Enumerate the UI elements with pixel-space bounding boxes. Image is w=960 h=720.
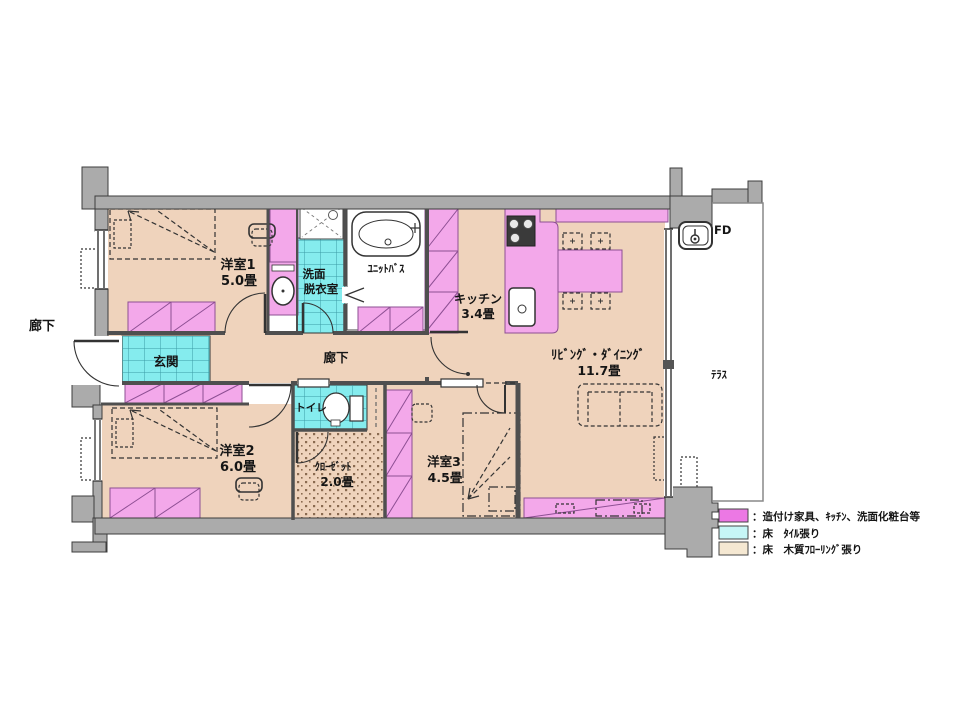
legend-swatch-wood [719,542,748,555]
label-room1-name: 洋室1 [220,257,255,273]
label-closet-name: ｸﾛｰｾﾞｯﾄ [315,460,352,473]
legend-swatch-builtin [719,509,748,522]
floor-plan: ：造付け家具、ｷｯﾁﾝ、洗面化粧台等 ：床 ﾀｲﾙ張り ：床 木質ﾌﾛｰﾘﾝｸﾞ… [0,0,960,720]
label-living-name: ﾘﾋﾞﾝｸﾞ・ﾀﾞｲﾆﾝｸﾞ [551,347,645,362]
legend-label-builtin: ：造付け家具、ｷｯﾁﾝ、洗面化粧台等 [752,510,920,523]
label-unit-bath: ﾕﾆｯﾄﾊﾞｽ [368,262,405,275]
window-mullion [663,360,674,369]
room1-window [95,230,108,289]
label-corridor-outside: 廊下 [29,318,55,334]
legend: ：造付け家具、ｷｯﾁﾝ、洗面化粧台等 ：床 ﾀｲﾙ張り ：床 木質ﾌﾛｰﾘﾝｸﾞ… [719,509,920,556]
label-living-size: 11.7畳 [577,363,621,378]
label-room2-size: 6.0畳 [220,460,256,475]
label-fd: FD [714,223,731,237]
label-room3-name: 洋室3 [427,454,461,469]
legend-label-tile: ：床 ﾀｲﾙ張り [752,527,820,540]
floor-plan-page: ：造付け家具、ｷｯﾁﾝ、洗面化粧台等 ：床 ﾀｲﾙ張り ：床 木質ﾌﾛｰﾘﾝｸﾞ… [0,0,960,720]
toilet-tank [350,396,363,421]
label-kitchen-name: キッチン [454,292,502,306]
legend-label-wood: ：床 木質ﾌﾛｰﾘﾝｸﾞ張り [752,543,862,556]
fd-symbol [679,222,712,249]
label-corridor: 廊下 [323,350,349,365]
room2-window [93,419,102,481]
toilet-sliding-door [298,379,329,387]
label-room1-size: 5.0畳 [221,274,257,289]
toilet-bowl [323,393,349,423]
legend-swatch-tile [719,526,748,539]
toilet-seat-hinge [331,420,340,426]
label-room2-name: 洋室2 [219,443,254,459]
label-entrance: 玄関 [153,354,178,369]
kitchen-stove [507,216,535,246]
label-terrace: ﾃﾗｽ [711,369,728,381]
washbasin-bowl [272,265,294,305]
balcony-sliding-window [663,229,674,497]
label-closet-size: 2.0畳 [320,475,353,489]
label-room3-size: 4.5畳 [428,470,463,485]
label-toilet: トイレ [295,402,327,414]
kitchen-sink [509,288,535,326]
dining-table [558,250,622,292]
label-washroom-line2: 脱衣室 [304,282,339,296]
terrace-outline [712,203,763,501]
entrance-door [71,336,122,386]
washing-machine-pan [300,206,343,239]
bathtub [352,212,420,256]
label-kitchen-size: 3.4畳 [461,307,494,321]
label-washroom-line1: 洗面 [303,267,326,281]
toilet-fixture [323,393,363,426]
